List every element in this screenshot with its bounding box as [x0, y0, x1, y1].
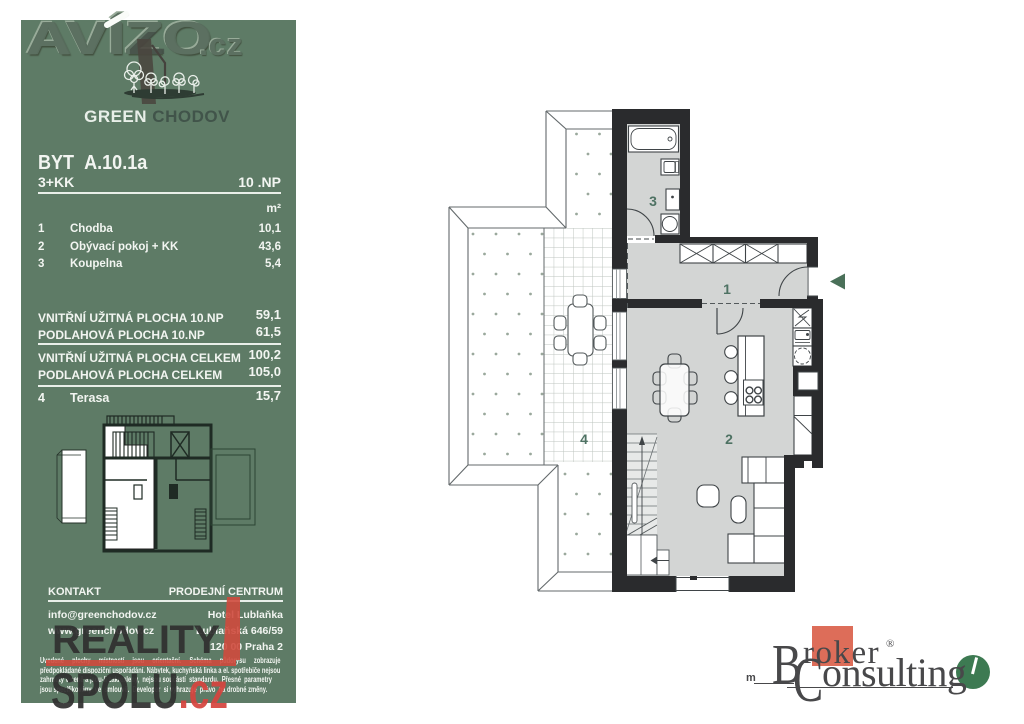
- svg-text:2: 2: [725, 431, 733, 447]
- svg-text:1: 1: [723, 281, 731, 297]
- svg-text:4: 4: [580, 431, 588, 447]
- svg-text:3: 3: [649, 193, 657, 209]
